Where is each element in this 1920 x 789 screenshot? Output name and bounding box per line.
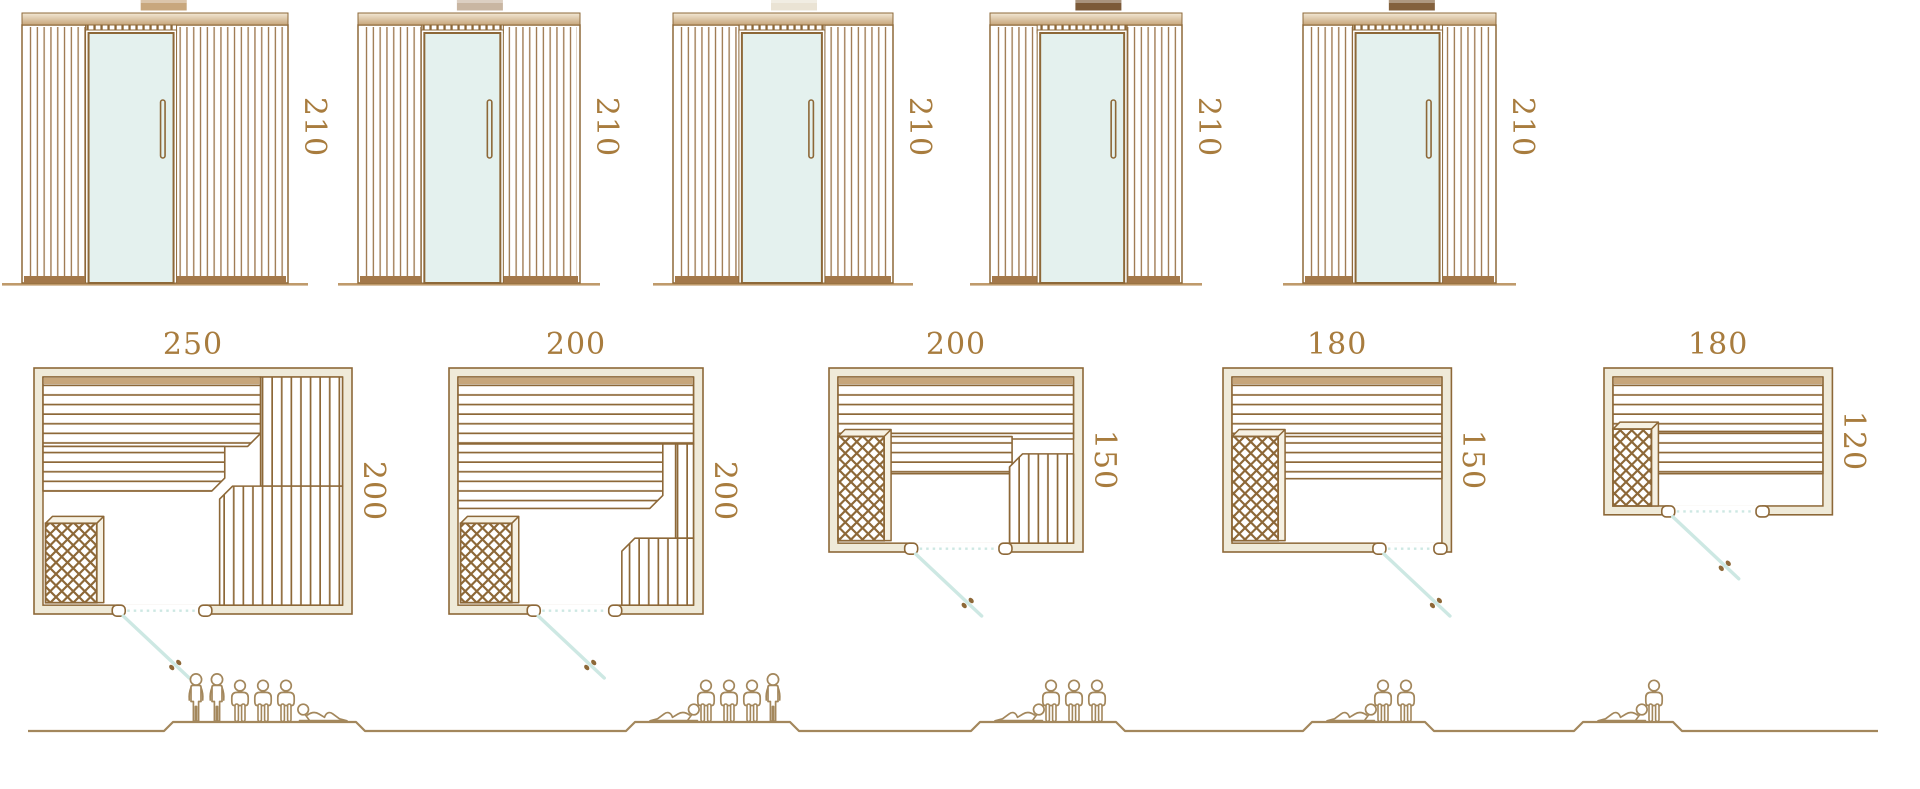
bench-vertical-slats <box>220 486 343 605</box>
heater-stones-lattice <box>838 437 884 541</box>
plan-width-label: 180 <box>1307 330 1367 360</box>
sitting-person-icon <box>1043 680 1059 721</box>
right-slat-panel <box>825 27 890 276</box>
plan-depth-label: 150 <box>1457 430 1487 490</box>
lying-person-icon <box>650 704 699 721</box>
sitting-person-icon <box>698 680 714 721</box>
lying-person-icon <box>995 704 1044 721</box>
roof-band <box>1303 13 1496 25</box>
sauna-180x120-capacity-group <box>1598 680 1662 721</box>
heater-stones-lattice <box>1613 429 1651 506</box>
door-handle <box>1427 100 1432 158</box>
bench-horizontal-slats <box>43 377 261 446</box>
bench-backrest-band <box>44 378 260 384</box>
standing-person-icon <box>210 674 224 721</box>
left-slat-panel <box>676 27 739 276</box>
heater-stones-lattice <box>46 523 97 602</box>
roof-band <box>22 13 288 25</box>
sitting-person-icon <box>721 680 737 721</box>
door-swing-line <box>1384 554 1450 616</box>
left-slat-panel <box>361 27 421 276</box>
front-height-label: 210 <box>904 97 934 157</box>
sauna-180x150-floor-plan <box>1222 367 1457 653</box>
plan-width-label: 250 <box>163 330 223 360</box>
lying-person-icon <box>1327 704 1376 721</box>
door-handle <box>1111 100 1116 158</box>
right-slat-panel <box>1443 27 1493 276</box>
bench-vertical-slats <box>676 444 694 538</box>
standing-person-icon <box>189 674 203 721</box>
plan-width-label: 200 <box>546 330 606 360</box>
bench-horizontal-slats <box>1278 437 1442 479</box>
front-height-label: 210 <box>299 97 329 157</box>
sitting-person-icon <box>1398 680 1414 721</box>
sauna-250x200-front-view <box>0 0 310 300</box>
bench-horizontal-slats <box>458 444 663 508</box>
bench-horizontal-slats <box>43 446 225 491</box>
front-height-label: 210 <box>1193 97 1223 157</box>
bench-backrest-band <box>1614 378 1822 384</box>
sauna-180x150-capacity-group <box>1327 680 1414 721</box>
sauna-size-diagram: 2102102102102102502002002002001501801501… <box>0 0 1920 789</box>
plan-width-label: 180 <box>1688 330 1748 360</box>
bench-horizontal-slats <box>458 377 694 444</box>
roof-band <box>358 13 580 25</box>
right-door-post <box>1434 543 1447 554</box>
door-swing-line <box>916 554 982 616</box>
sauna-180x120-floor-plan <box>1603 367 1838 616</box>
sitting-person-icon <box>1089 680 1105 721</box>
sauna-180x120-front-view <box>1281 0 1518 300</box>
sitting-person-icon <box>278 680 294 721</box>
sauna-200x150-front-view <box>651 0 915 300</box>
bench-backrest-band <box>1233 378 1441 384</box>
bench-vertical-slats <box>261 377 343 486</box>
plan-width-label: 200 <box>926 330 986 360</box>
roof-band <box>673 13 893 25</box>
plan-depth-label: 200 <box>358 461 388 521</box>
sitting-person-icon <box>232 680 248 721</box>
heater-stones-lattice <box>1232 437 1278 541</box>
right-slat-panel <box>177 27 285 276</box>
sitting-person-icon <box>1375 680 1391 721</box>
bench-vertical-slats <box>622 538 694 605</box>
sauna-180x150-front-view <box>968 0 1204 300</box>
bench-horizontal-slats <box>1651 432 1823 474</box>
bench-vertical-slats <box>1010 454 1074 543</box>
door-handle <box>161 100 166 158</box>
sitting-person-icon <box>255 680 271 721</box>
bench-horizontal-slats <box>884 437 1012 474</box>
lying-person-icon <box>298 704 347 721</box>
roof-band <box>990 13 1182 25</box>
right-door-post <box>199 605 212 616</box>
plan-depth-label: 120 <box>1838 411 1868 471</box>
sauna-250x200-capacity-group <box>189 674 347 722</box>
plan-depth-label: 200 <box>709 461 739 521</box>
capacity-row <box>0 645 1920 775</box>
sauna-200x150-floor-plan <box>828 367 1088 653</box>
sitting-person-icon <box>744 680 760 721</box>
front-height-label: 210 <box>1507 97 1537 157</box>
sitting-person-icon <box>1646 680 1662 721</box>
left-slat-panel <box>1306 27 1353 276</box>
door-handle <box>809 100 814 158</box>
front-height-label: 210 <box>591 97 621 157</box>
bench-backrest-band <box>839 378 1073 384</box>
capacity-baseline <box>28 722 1878 731</box>
right-door-post <box>999 543 1012 554</box>
door-handle <box>487 100 492 158</box>
sauna-200x150-capacity-group <box>995 680 1105 721</box>
standing-person-icon <box>766 674 780 721</box>
right-door-post <box>1756 506 1769 517</box>
door-swing-line <box>1673 517 1739 579</box>
left-slat-panel <box>993 27 1037 276</box>
left-slat-panel <box>25 27 86 276</box>
plan-depth-label: 150 <box>1089 430 1119 490</box>
sauna-200x200-capacity-group <box>650 674 780 722</box>
lying-person-icon <box>1598 704 1647 721</box>
right-door-post <box>609 605 622 616</box>
right-slat-panel <box>503 27 577 276</box>
heater-stones-lattice <box>461 523 512 602</box>
sauna-200x200-front-view <box>336 0 602 300</box>
bench-backrest-band <box>459 378 693 384</box>
sitting-person-icon <box>1066 680 1082 721</box>
right-slat-panel <box>1127 27 1179 276</box>
